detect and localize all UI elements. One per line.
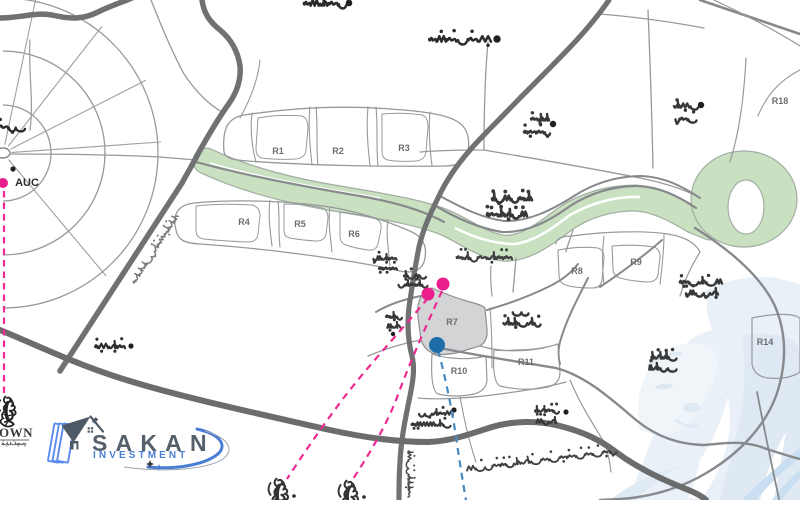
- svg-text:INVESTMENT: INVESTMENT: [93, 450, 188, 461]
- svg-text:R9: R9: [630, 257, 642, 267]
- svg-text:R18: R18: [772, 96, 789, 106]
- svg-text:R7: R7: [446, 317, 458, 327]
- svg-text:R14: R14: [757, 337, 774, 347]
- svg-text:R1: R1: [272, 146, 284, 156]
- svg-text:R4: R4: [238, 217, 250, 227]
- svg-text:R10: R10: [451, 366, 468, 376]
- svg-text:R3: R3: [398, 143, 410, 153]
- svg-text:R6: R6: [348, 229, 360, 239]
- svg-text:R5: R5: [294, 219, 306, 229]
- svg-text:R2: R2: [332, 146, 344, 156]
- svg-text:AUC: AUC: [15, 177, 39, 189]
- svg-text:R11: R11: [518, 357, 534, 367]
- svg-text:R8: R8: [571, 266, 583, 276]
- svg-text:TOWN: TOWN: [0, 425, 33, 440]
